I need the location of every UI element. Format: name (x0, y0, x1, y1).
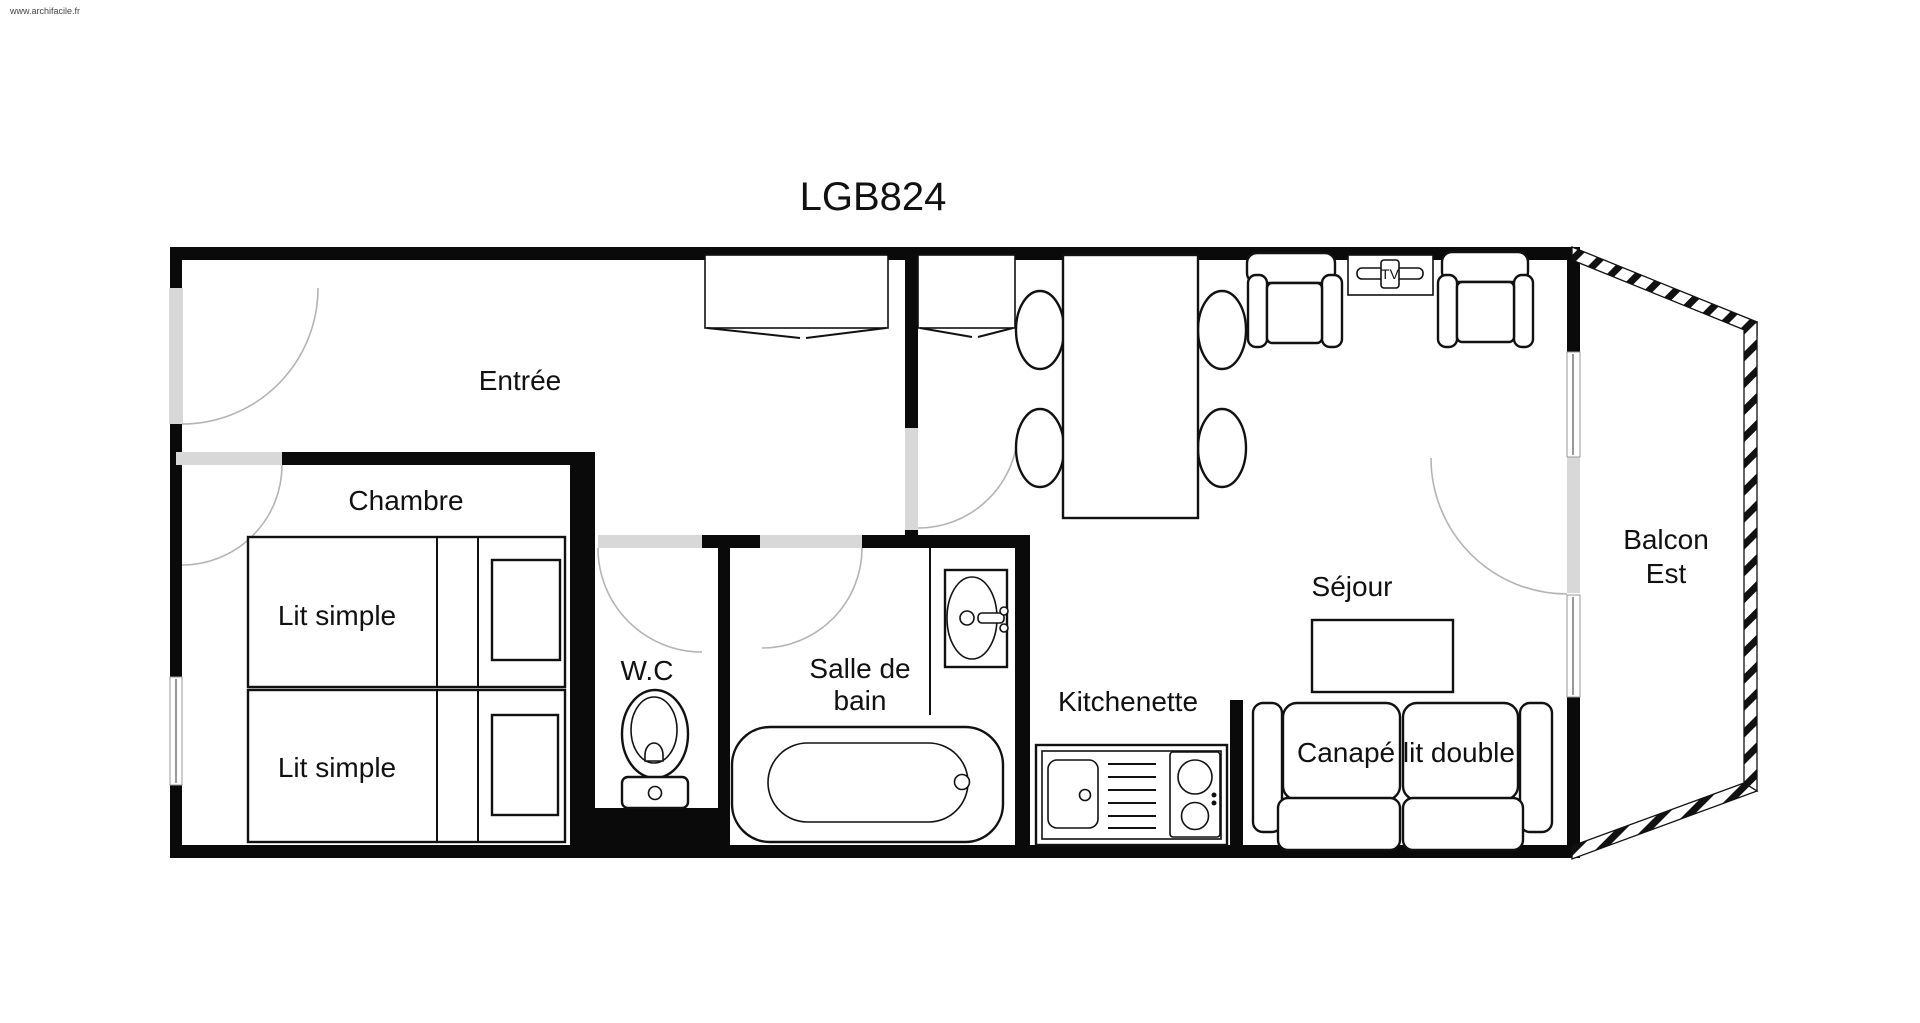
armchair-2-arm-left (1438, 275, 1457, 347)
bathtub (732, 727, 1003, 842)
door-dining-arc (918, 428, 1018, 528)
wall-chambre-wc (570, 452, 595, 845)
door-balcony-arc (1431, 458, 1567, 594)
toilet-flush-button (649, 787, 662, 800)
dining-chair-3 (1198, 291, 1246, 369)
closet-entree-rail-left (707, 328, 800, 338)
washbasin (945, 570, 1008, 667)
armchair-2 (1438, 252, 1533, 347)
label-balcon-line2: Est (1646, 558, 1687, 589)
balcony-railing-top (1572, 247, 1757, 335)
label-sofa: Canapé lit double (1297, 737, 1515, 768)
dining-table (1063, 255, 1198, 518)
kitchen-burner-large (1178, 760, 1212, 794)
label-balcon-line1: Balcon (1623, 524, 1709, 555)
washbasin-faucet (978, 613, 1004, 623)
closet-dining-rail-left (920, 328, 972, 337)
wall-corridor-2 (862, 535, 1030, 548)
bed-1-pillow (492, 560, 560, 660)
watermark: www.archifacile.fr (9, 6, 80, 16)
label-chambre: Chambre (348, 485, 463, 516)
door-entry (169, 288, 183, 424)
dining-chair-2 (1016, 409, 1064, 487)
label-bathroom-line1: Salle de (809, 653, 910, 684)
label-bathroom-line2: bain (834, 685, 887, 716)
door-bathroom (760, 535, 862, 548)
kitchenette-unit (1036, 745, 1227, 845)
door-wc-arc (598, 548, 702, 652)
dining-chair-4 (1198, 409, 1246, 487)
wall-wc-right (718, 548, 730, 845)
armchair-1 (1247, 253, 1342, 347)
closet-dining-rail-right (978, 328, 1013, 337)
armchair-1-arm-left (1248, 275, 1267, 347)
floor-plan-page: TV (0, 0, 1920, 1023)
door-entry-arc (182, 288, 318, 424)
label-bed-1: Lit simple (278, 600, 396, 631)
wall-left-lower (170, 785, 182, 858)
closet-dining-body (918, 255, 1015, 328)
toilet-outlet (645, 743, 663, 761)
bathtub-inner (768, 743, 968, 822)
dining-set (1016, 255, 1246, 518)
wall-divider-stub (905, 530, 918, 548)
dining-chair-1 (1016, 291, 1064, 369)
balcony-railing-right (1744, 322, 1757, 791)
door-wc (598, 535, 702, 548)
label-entree: Entrée (479, 365, 562, 396)
toilet (622, 690, 688, 808)
wall-bathroom-right (1015, 535, 1030, 845)
closet-entree-body (705, 255, 888, 328)
washbasin-tap-1 (1000, 607, 1008, 615)
kitchen-knob-1 (1212, 793, 1217, 798)
sofa-arm-right (1520, 703, 1552, 832)
armchair-2-arm-right (1514, 275, 1533, 347)
wall-kitchenette (1230, 700, 1243, 845)
tv-label: TV (1381, 266, 1400, 282)
kitchen-knob-2 (1212, 801, 1217, 806)
wall-left-upper (170, 247, 182, 292)
balcony-railing-bottom (1572, 783, 1757, 859)
door-bathroom-arc (762, 548, 862, 648)
washbasin-tap-2 (1000, 624, 1008, 632)
floor-plan-canvas: TV (0, 0, 1920, 1023)
wall-chambre-top (282, 452, 588, 465)
closet-entree-rail-right (806, 328, 886, 338)
bathtub-drain (955, 775, 970, 790)
sofa-seat-right (1403, 798, 1523, 850)
door-dining (905, 428, 918, 530)
coffee-table (1312, 620, 1453, 692)
page-title: LGB824 (800, 175, 947, 219)
closet-dining (918, 255, 1015, 337)
label-wc: W.C (621, 655, 674, 686)
label-bed-2: Lit simple (278, 752, 396, 783)
wall-wc-block (595, 808, 718, 845)
armchair-1-arm-right (1322, 275, 1342, 347)
kitchen-sink-drain (1080, 790, 1091, 801)
sofa-seat-left (1278, 798, 1400, 850)
tv-unit: TV (1348, 255, 1433, 295)
door-balcony (1567, 457, 1580, 593)
door-chambre (176, 452, 282, 465)
wall-right-lower (1567, 697, 1580, 853)
wall-divider-entree (905, 247, 918, 428)
kitchen-burner-small (1182, 803, 1209, 830)
sofa-bed (1253, 703, 1552, 850)
closet-entree (705, 255, 888, 338)
label-kitchenette: Kitchenette (1058, 686, 1198, 717)
armchair-1-seat (1267, 283, 1322, 343)
armchair-2-seat (1457, 282, 1514, 342)
washbasin-drain (960, 611, 974, 625)
bed-2-pillow (492, 715, 558, 815)
label-sejour: Séjour (1312, 571, 1393, 602)
wall-corridor-1 (702, 535, 760, 548)
